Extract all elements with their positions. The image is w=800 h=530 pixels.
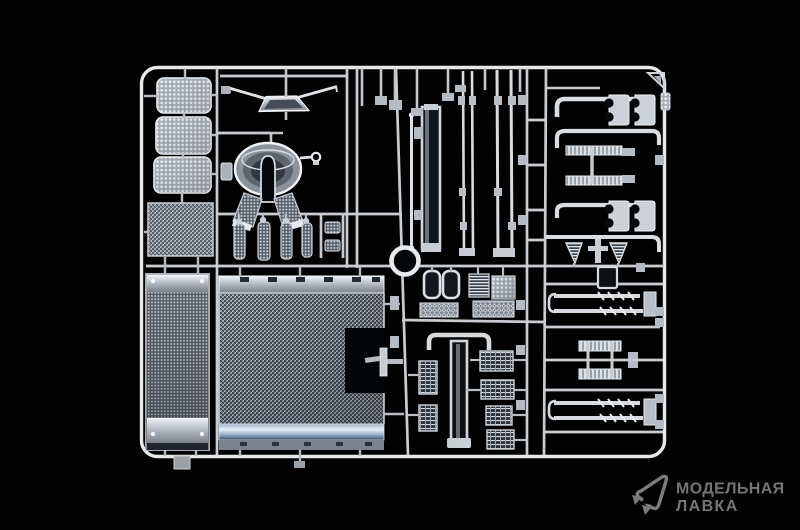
svg-text:ЛАВКА: ЛАВКА	[676, 498, 739, 515]
svg-text:МОДЕЛЬНАЯ: МОДЕЛЬНАЯ	[676, 481, 785, 498]
